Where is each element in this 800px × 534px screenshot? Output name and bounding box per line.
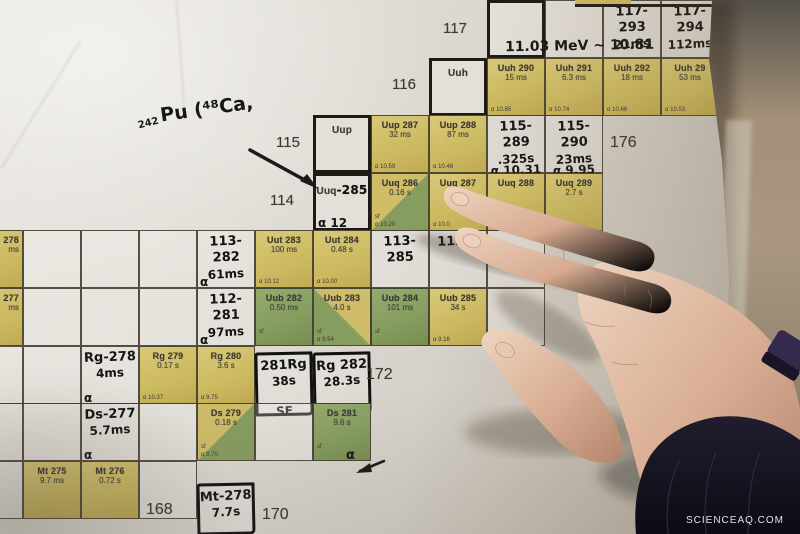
n-label-168: 168	[146, 501, 173, 519]
cell-ds-277: Ds-2775.7msα	[81, 403, 139, 461]
annotation-pu-reaction: Pu (⁴⁸Ca,	[159, 92, 255, 127]
cell-uup-288: Uup 28887 msα 10.46	[429, 115, 487, 173]
cell-uup: Uup	[313, 115, 371, 173]
n-label-170: 170	[262, 506, 289, 524]
cell-mt-278: Mt-2787.7s	[196, 482, 255, 534]
cell-uut-284: Uut 2840.48 sα 10.00	[313, 230, 371, 288]
annotation-ds281-alpha: α	[346, 448, 355, 463]
cell-uuq-287: Uuq 2870.51 sα 10.0	[429, 173, 487, 231]
cell-uuh-291: Uuh 2916.3 msα 10.74	[545, 58, 603, 116]
cell-113-282: 113-28261msα	[197, 230, 255, 288]
cell-uuh-290: Uuh 29015 msα 10.85	[487, 58, 545, 116]
cell-empty	[0, 461, 23, 519]
cell-uuh-292: Uuh 29218 msα 10.66	[603, 58, 661, 116]
cell-empty	[487, 230, 545, 288]
cell-113-2: 113-2	[429, 230, 487, 288]
cell-mt-275: Mt 2759.7 ms	[23, 461, 81, 519]
chart-top-border	[575, 4, 718, 7]
annotation-pu-242: 242	[137, 116, 160, 132]
cell-uup-287: Uup 28732 msα 10.59	[371, 115, 429, 173]
cell-uub-283: Uub 2834.0 ssfα 9.54	[313, 288, 371, 346]
photo-scene: 117-29321ms117-294112msUuhUuh 29015 msα …	[0, 0, 800, 534]
cell-mt-276: Mt 2760.72 s	[81, 461, 139, 519]
cell-empty	[255, 403, 313, 461]
cell-empty	[81, 230, 139, 288]
cell-uuq-288: Uuq 288α 9.95	[487, 173, 545, 231]
cell-uub-285: Uub 28534 sα 9.16	[429, 288, 487, 346]
cell-uub-284: Uub 284101 mssf	[371, 288, 429, 346]
cell-277: 277ms	[0, 288, 23, 346]
cell-115-289: 115-289.325sα 10.31	[487, 115, 545, 173]
cell-ds-281: Ds 2819.6 ssf	[313, 403, 371, 461]
cell-empty	[139, 230, 197, 288]
cell-empty	[139, 403, 197, 461]
watermark: SCIENCEAQ.COM	[686, 515, 784, 526]
cell-uub-282: Uub 2820.50 mssf	[255, 288, 313, 346]
watch	[760, 328, 800, 381]
cell-115-290: 115-29023msα 9.95	[545, 115, 603, 173]
cell-empty	[23, 230, 81, 288]
cell-empty	[487, 288, 545, 346]
cell-ds-279: Ds 2790.18 ssfα 9.70	[197, 403, 255, 461]
z-label-114: 114	[270, 192, 294, 209]
cell-uuq-289: Uuq 2892.7 s	[545, 173, 603, 231]
n-label-172: 172	[366, 366, 393, 384]
cell-uuq: Uuq-285α 12	[313, 173, 371, 231]
cell-113-285: 113-285	[371, 230, 429, 288]
paper-sheet: 117-29321ms117-294112msUuhUuh 29015 msα …	[0, 0, 800, 534]
cell-rg-278: Rg-2784msα	[81, 346, 139, 404]
n-label-176: 176	[610, 134, 637, 152]
cell-empty	[139, 288, 197, 346]
cell-278: 278ms	[0, 230, 23, 288]
cell-112-281: 112-28197msα	[197, 288, 255, 346]
z-label-116: 116	[392, 76, 416, 93]
cell-empty	[23, 346, 81, 404]
cell-empty	[81, 288, 139, 346]
cell-empty	[23, 403, 81, 461]
cell-empty	[0, 346, 23, 404]
cell-uut-283: Uut 283100 msα 10.12	[255, 230, 313, 288]
cell-rg-279: Rg 2790.17 sα 10.37	[139, 346, 197, 404]
nuclide-grid: 117-29321ms117-294112msUuhUuh 29015 msα …	[0, 0, 800, 534]
annotation-mev-chain: 11.03 MeV ~ 10.81	[505, 37, 654, 56]
z-label-115: 115	[276, 134, 300, 151]
cell-empty	[23, 288, 81, 346]
cell-uuq-286: Uuq 2860.16 ssfα 10.20	[371, 173, 429, 231]
z-label-117: 117	[443, 20, 467, 37]
cell-empty	[0, 403, 23, 461]
cell-rg-280: Rg 2803.6 sα 9.75	[197, 346, 255, 404]
cell-uuh: Uuh	[429, 58, 487, 116]
